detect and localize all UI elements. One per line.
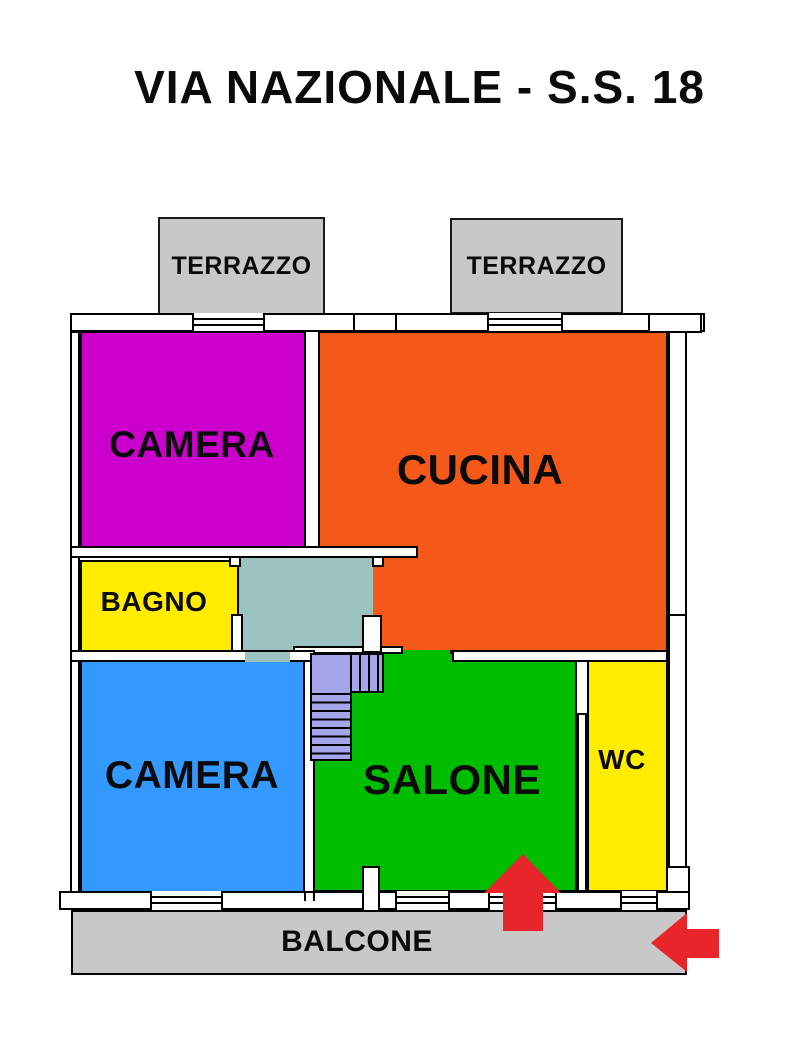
- staircase-landing: [310, 653, 352, 695]
- window-symbol-bottom-camera: [150, 891, 223, 910]
- window-symbol-bottom-wc: [620, 891, 658, 910]
- wall-top: [70, 313, 705, 332]
- floor-plan: VIA NAZIONALE - S.S. 18 TERRAZZO TERRAZZ…: [0, 0, 795, 1040]
- window-symbol-top-right: [487, 313, 563, 332]
- wall-joint: [313, 891, 315, 901]
- room-bagno-label: BAGNO: [101, 586, 208, 618]
- door-block-salone-balcone: [362, 866, 380, 912]
- wall-joint: [395, 313, 397, 332]
- room-wc: [587, 660, 668, 892]
- wall-salone-wc: [577, 713, 587, 892]
- door-jamb-bagno: [229, 556, 241, 567]
- door-opening-cucina-salone: [403, 650, 450, 656]
- wall-joint: [304, 891, 306, 901]
- room-cucina-label: CUCINA: [397, 446, 563, 494]
- room-salone-label: SALONE: [363, 756, 541, 804]
- room-balcone-label: BALCONE: [281, 925, 433, 959]
- window-symbol-bottom-salone-right: [488, 891, 557, 910]
- staircase-upper-flight: [350, 653, 384, 693]
- terrace-right: TERRAZZO: [450, 218, 623, 314]
- staircase-lower-flight: [310, 693, 352, 761]
- window-symbol-top-left: [192, 313, 265, 332]
- room-camera-top-label: CAMERA: [109, 424, 274, 466]
- wall-mid-horizontal: [70, 546, 418, 558]
- terrace-left-label: TERRAZZO: [171, 252, 311, 281]
- room-corridoio: [239, 558, 373, 650]
- room-wc-label: WC: [598, 744, 646, 776]
- terrace-left: TERRAZZO: [158, 217, 325, 315]
- wall-joint: [668, 614, 687, 616]
- door-jamb-cucina: [372, 556, 384, 567]
- terrace-right-label: TERRAZZO: [466, 252, 606, 281]
- wall-right: [668, 313, 687, 910]
- door-leaf-cucina: [362, 615, 382, 653]
- wall-right-corner-tab: [648, 313, 702, 333]
- wall-left: [70, 331, 80, 893]
- door-opening-corridoio-camera: [245, 652, 290, 662]
- page-title: VIA NAZIONALE - S.S. 18: [22, 60, 795, 114]
- door-leaf-bagno: [231, 614, 243, 652]
- room-camera-bottom-label: CAMERA: [105, 754, 279, 798]
- window-symbol-bottom-salone-left: [395, 891, 450, 910]
- wall-joint: [353, 313, 355, 332]
